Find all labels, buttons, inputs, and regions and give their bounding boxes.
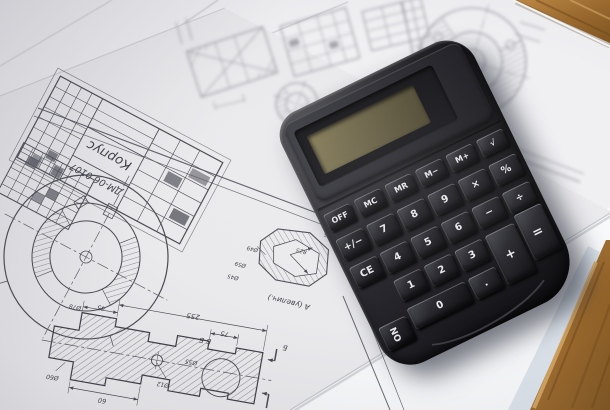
- key-7[interactable]: 7: [366, 212, 403, 246]
- lcd-display: [307, 85, 431, 174]
- key-sign[interactable]: +/−: [335, 227, 372, 261]
- key-1[interactable]: 1: [393, 268, 430, 302]
- key-4[interactable]: 4: [379, 240, 416, 274]
- key-2[interactable]: 2: [423, 253, 460, 287]
- key-percent[interactable]: %: [488, 153, 525, 187]
- key-8[interactable]: 8: [396, 198, 433, 232]
- key-mr[interactable]: MR: [384, 173, 418, 203]
- key-m-plus[interactable]: M+: [445, 143, 479, 173]
- key-5[interactable]: 5: [410, 225, 447, 259]
- key-6[interactable]: 6: [440, 211, 477, 245]
- key-ce[interactable]: CE: [349, 255, 386, 289]
- key-m-minus[interactable]: M−: [414, 158, 448, 188]
- key-multiply[interactable]: ×: [457, 168, 494, 202]
- key-mc[interactable]: MC: [353, 188, 387, 218]
- key-9[interactable]: 9: [427, 183, 464, 217]
- key-off[interactable]: OFF: [323, 203, 357, 233]
- key-3[interactable]: 3: [454, 238, 491, 272]
- dim-75: 75: [220, 329, 230, 338]
- dim-45: 45: [96, 303, 106, 312]
- dim-60: 60: [97, 396, 107, 405]
- key-sqrt[interactable]: √: [476, 128, 510, 158]
- key-minus[interactable]: −: [471, 196, 508, 230]
- key-on[interactable]: ON: [378, 315, 416, 352]
